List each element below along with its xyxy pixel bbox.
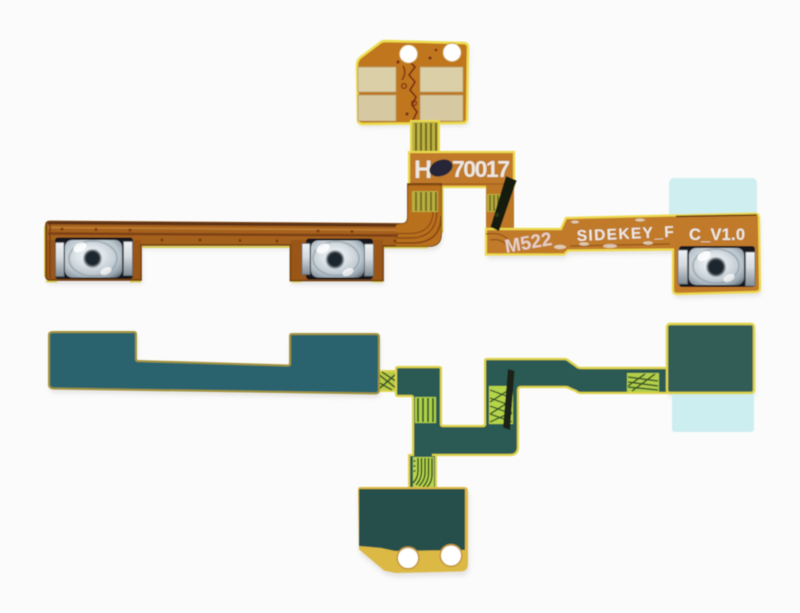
svg-text:70017: 70017	[452, 156, 510, 182]
svg-text:C_V1.0: C_V1.0	[689, 226, 745, 244]
svg-text:H: H	[414, 156, 432, 184]
